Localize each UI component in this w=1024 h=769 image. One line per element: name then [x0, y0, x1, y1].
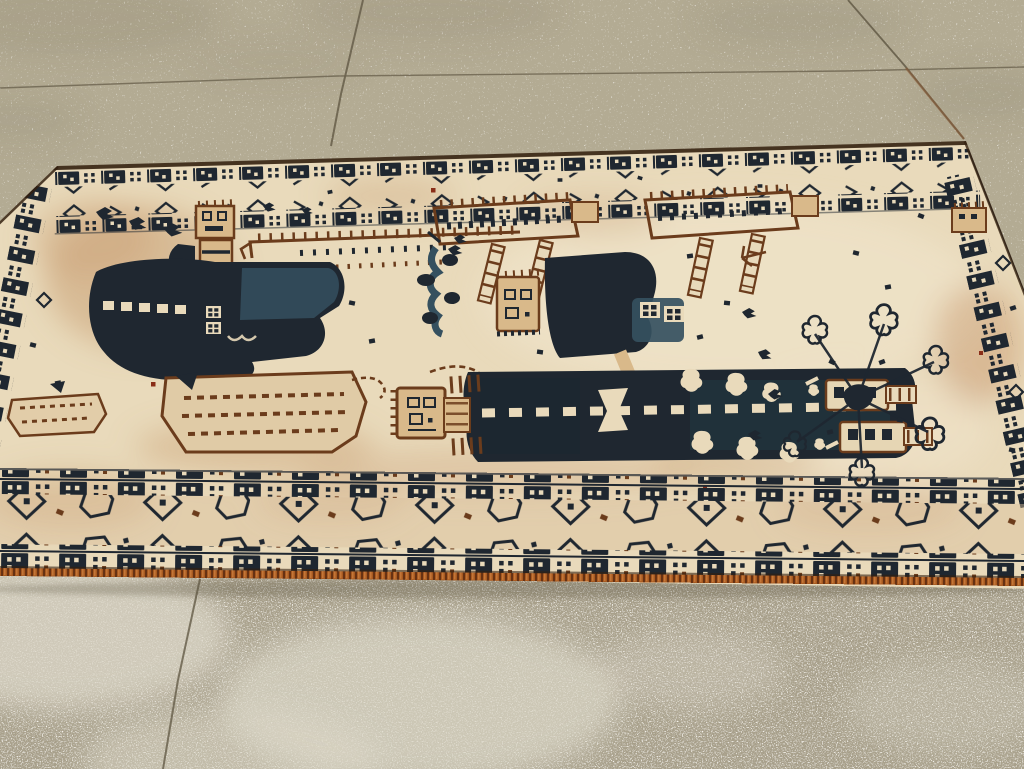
pictorial-rug [0, 136, 1024, 589]
photo-canvas [0, 0, 1024, 769]
banner-scene [395, 368, 932, 463]
rug-bottom-border [0, 468, 1024, 586]
corner-animal-motif [952, 204, 986, 232]
bottom-diamond-band [0, 494, 1024, 554]
